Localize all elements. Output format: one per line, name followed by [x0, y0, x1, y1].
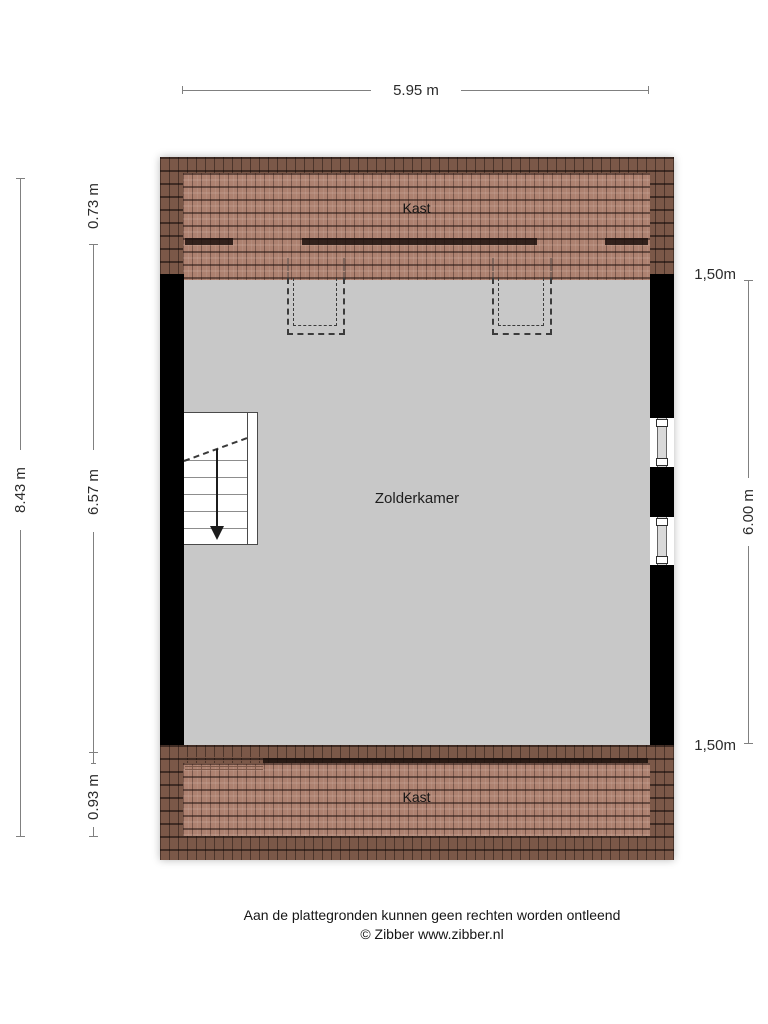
dim-tick	[648, 86, 649, 94]
stair-stringer	[247, 413, 248, 544]
window-upper	[650, 418, 674, 467]
dim-line	[93, 244, 94, 450]
roof-bottom: Kast	[160, 745, 674, 860]
headroom-top-label: 1,50m	[684, 266, 736, 283]
dim-left-middle-label: 6.57 m	[83, 460, 103, 524]
dim-tick	[744, 743, 753, 744]
dim-tick	[91, 763, 96, 764]
roof-top-inner	[183, 173, 650, 280]
dim-line	[748, 546, 749, 743]
dim-line	[20, 178, 21, 450]
floorplan-page: 5.95 m 8.43 m 0.73 m 6.57 m 0.93 m 1,50m…	[0, 0, 768, 1024]
roof-top: Kast	[160, 157, 674, 280]
wall-right	[650, 274, 674, 745]
room-label-kast-top: Kast	[183, 200, 650, 216]
dim-right-height-label: 6.00 m	[738, 480, 758, 544]
knee-wall-segment	[302, 238, 537, 245]
dim-line	[93, 532, 94, 752]
footer-disclaimer: Aan de plattegronden kunnen geen rechten…	[96, 906, 768, 925]
dim-tick	[89, 836, 98, 837]
floor-plan: Kast Zolderkamer	[160, 157, 674, 860]
footer: Aan de plattegronden kunnen geen rechten…	[96, 906, 768, 944]
knee-wall-segment	[263, 758, 648, 763]
skylight-2-inner	[498, 278, 544, 326]
footer-copyright: © Zibber www.zibber.nl	[96, 925, 768, 944]
dim-left-upper-label: 0.73 m	[83, 174, 103, 238]
dim-tick	[16, 836, 25, 837]
window-frame-cap	[656, 556, 668, 564]
dim-left-total-label: 8.43 m	[10, 458, 30, 522]
skylight-1-inner	[293, 278, 337, 326]
window-frame-cap	[656, 518, 668, 526]
headroom-bottom-label: 1,50m	[684, 737, 736, 754]
room-label-kast-bottom: Kast	[183, 789, 650, 805]
skylight-1-stub	[287, 258, 345, 278]
knee-wall-segment	[185, 238, 233, 245]
skylight-2-stub	[492, 258, 552, 278]
window-lower	[650, 517, 674, 565]
dim-line	[748, 280, 749, 478]
dim-line	[461, 90, 648, 91]
stairs-down-arrow-icon	[216, 449, 218, 528]
knee-wall-segment	[605, 238, 648, 245]
dim-line	[20, 530, 21, 836]
wall-left	[160, 274, 184, 745]
dim-line	[183, 90, 371, 91]
stairs	[184, 412, 258, 545]
window-frame-cap	[656, 419, 668, 427]
dim-left-lower-label: 0.93 m	[83, 765, 103, 829]
window-frame-cap	[656, 458, 668, 466]
dim-line	[93, 752, 94, 763]
dim-line	[93, 827, 94, 836]
dim-width-top-label: 5.95 m	[371, 82, 461, 99]
stair-opening-hatch	[185, 757, 263, 771]
stairs-down-arrowhead-icon	[210, 526, 224, 540]
